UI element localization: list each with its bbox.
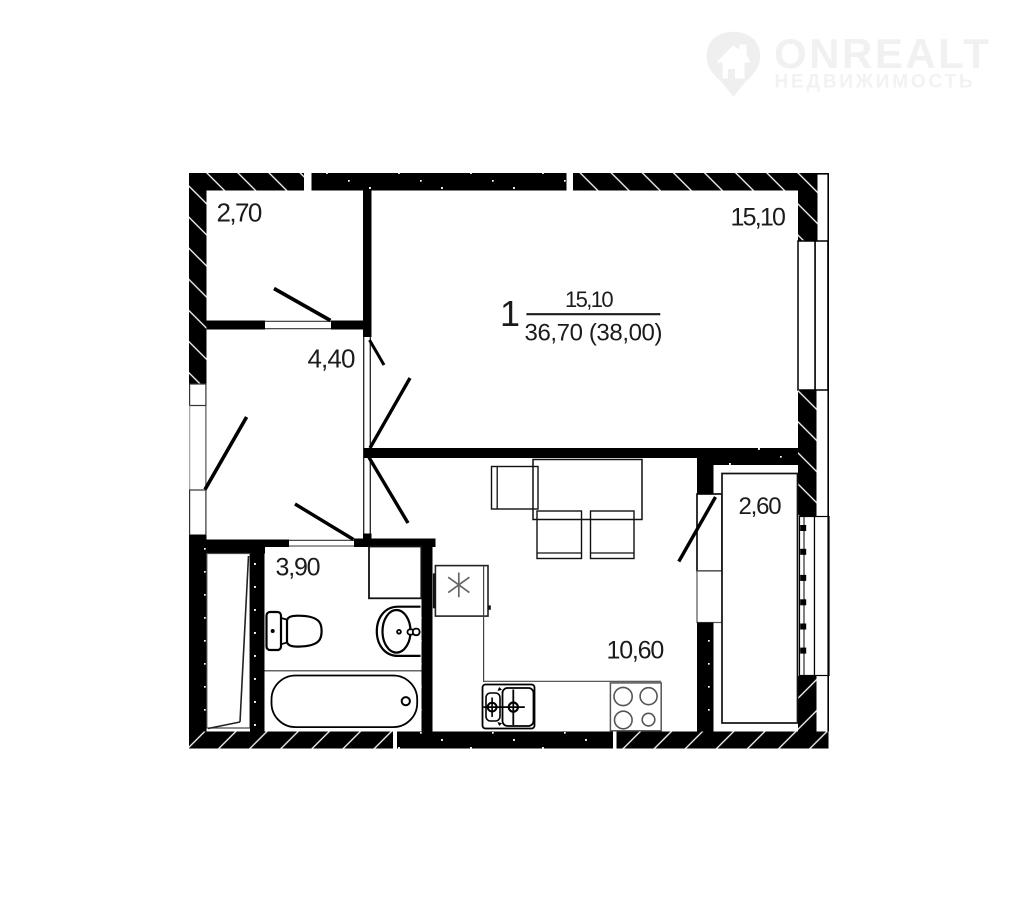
svg-text:НЕДВИЖИМОСТЬ: НЕДВИЖИМОСТЬ bbox=[775, 72, 976, 93]
svg-text:3,90: 3,90 bbox=[276, 554, 320, 582]
svg-text:4,40: 4,40 bbox=[308, 344, 355, 374]
svg-text:1: 1 bbox=[500, 293, 520, 334]
svg-text:ONREALT: ONREALT bbox=[774, 30, 991, 77]
svg-text:36,70 (38,00): 36,70 (38,00) bbox=[525, 320, 663, 347]
svg-text:15,10: 15,10 bbox=[565, 287, 613, 312]
svg-text:10,60: 10,60 bbox=[607, 637, 664, 665]
svg-text:15,10: 15,10 bbox=[731, 204, 785, 232]
svg-text:2,70: 2,70 bbox=[217, 198, 262, 228]
svg-text:2,60: 2,60 bbox=[739, 493, 782, 520]
